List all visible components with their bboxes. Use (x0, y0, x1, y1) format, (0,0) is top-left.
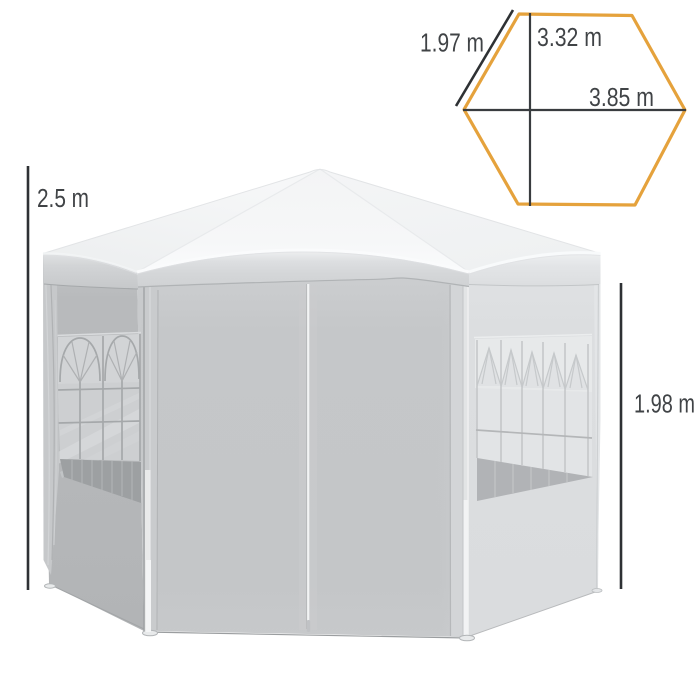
svg-text:1.97 m: 1.97 m (420, 30, 484, 58)
svg-text:2.5 m: 2.5 m (37, 185, 89, 213)
svg-text:3.85 m: 3.85 m (589, 84, 654, 112)
svg-text:1.98 m: 1.98 m (634, 391, 695, 419)
svg-text:3.32 m: 3.32 m (537, 24, 602, 52)
